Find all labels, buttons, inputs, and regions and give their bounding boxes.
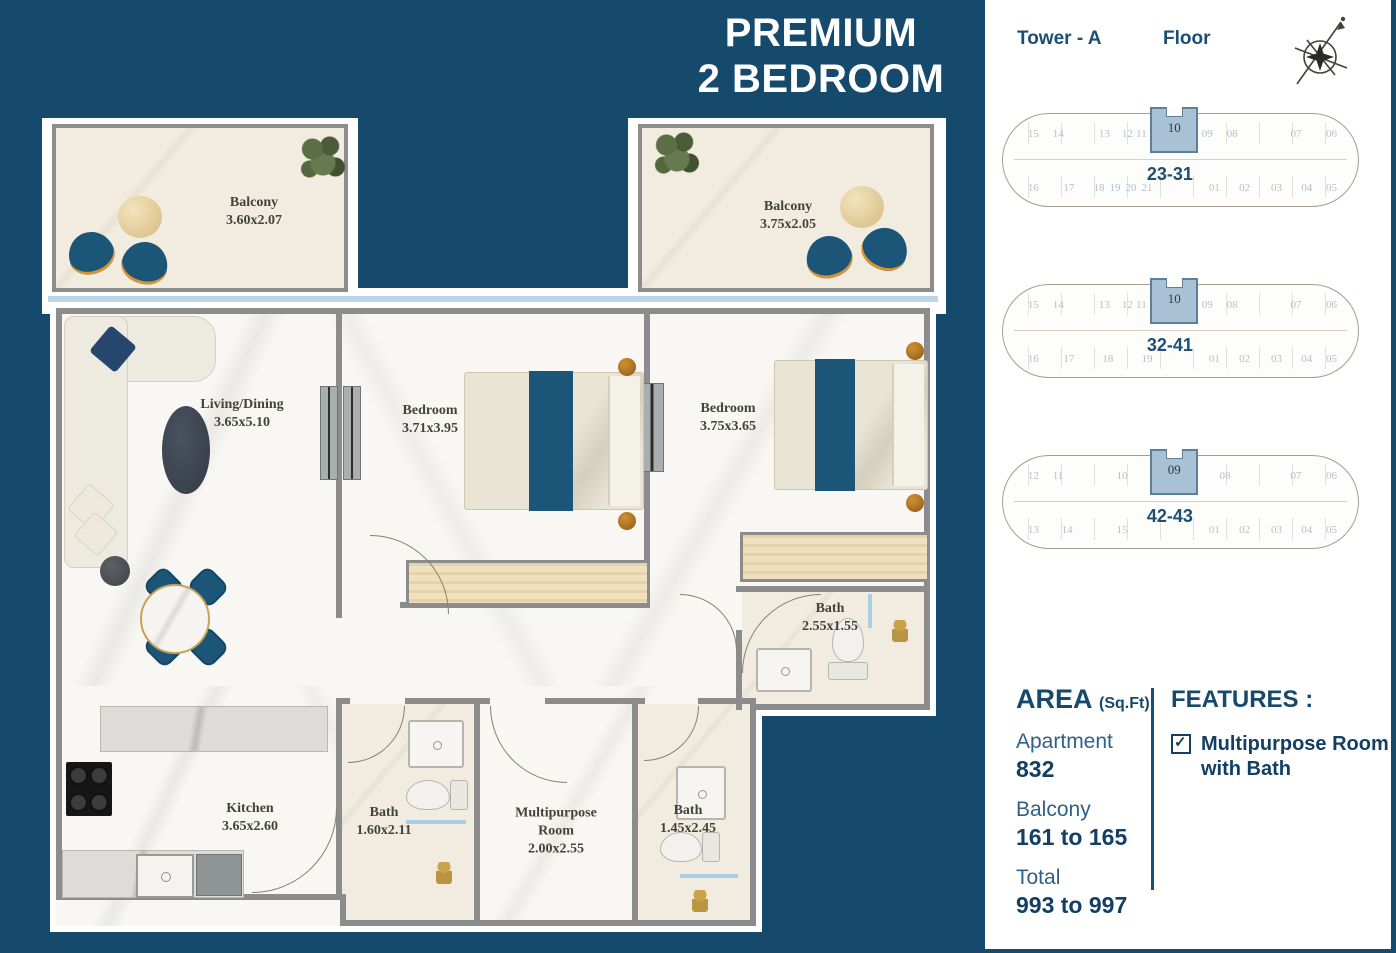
bed-runner (815, 359, 855, 491)
floor-plate-32-41: 15 14 13 12 11 09 08 07 06 16 17 18 19 0… (1002, 284, 1359, 378)
unit-number: 18 (1094, 182, 1105, 194)
kitchen-counter (100, 706, 328, 752)
area-item-value: 161 to 165 (1016, 824, 1127, 851)
unit-number: 19 (1110, 182, 1121, 194)
toilet (450, 780, 468, 810)
unit-number: 04 (1301, 353, 1312, 365)
floor-plate-23-31: 15 14 13 12 11 09 08 07 06 16 17 18 19 2… (1002, 113, 1359, 207)
unit-number: 05 (1326, 182, 1337, 194)
area-heading: AREA (Sq.Ft) (1016, 684, 1150, 715)
room-dims: 3.75x2.05 (760, 216, 816, 234)
balcony-table (840, 186, 884, 228)
unit-number: 02 (1239, 182, 1250, 194)
plate-corridor-line (1014, 159, 1348, 160)
unit-number: 12 (1122, 128, 1133, 140)
plate-corridor-line (1014, 501, 1348, 502)
bed-pillows (608, 376, 640, 506)
unit-number: 06 (1326, 128, 1337, 140)
floor-range: 23-31 (1147, 164, 1193, 185)
wall (474, 704, 480, 920)
shower-glass (868, 594, 872, 628)
feature-label: Multipurpose Room with Bath (1201, 732, 1396, 782)
wardrobe (740, 532, 930, 582)
dining-table (140, 584, 210, 654)
room-name: Bedroom (402, 402, 458, 420)
section-divider (1151, 688, 1154, 890)
plan-title-line2: 2 BEDROOM (688, 56, 954, 102)
area-item-value: 993 to 997 (1016, 892, 1127, 919)
unit-number: 03 (1271, 353, 1282, 365)
unit-number: 11 (1053, 470, 1064, 482)
room-label-kitchen: Kitchen 3.65x2.60 (222, 800, 278, 836)
unit-number: 02 (1239, 353, 1250, 365)
lamp (906, 494, 924, 512)
plant (298, 134, 346, 184)
wall (340, 920, 756, 926)
wall (698, 698, 756, 704)
unit-number: 13 (1099, 299, 1110, 311)
room-label-bath-3: Bath 1.45x2.45 (660, 802, 716, 838)
room-label-bath-master: Bath 2.55x1.55 (802, 600, 858, 636)
area-item-label: Apartment (1016, 730, 1127, 754)
feature-item: Multipurpose Room with Bath (1171, 732, 1396, 782)
unit-number: 04 (1301, 182, 1312, 194)
unit-number: 06 (1326, 470, 1337, 482)
unit-number: 03 (1271, 182, 1282, 194)
wall (340, 894, 346, 926)
unit-number: 07 (1291, 470, 1302, 482)
room-dims: 2.00x2.55 (499, 841, 613, 859)
unit-number: 07 (1291, 128, 1302, 140)
unit-number: 13 (1028, 524, 1039, 536)
unit-number: 01 (1209, 524, 1220, 536)
unit-number: 08 (1227, 299, 1238, 311)
bed (464, 372, 644, 510)
unit-number: 12 (1028, 470, 1039, 482)
shower-glass (406, 820, 466, 824)
room-dims: 3.71x3.95 (402, 420, 458, 438)
unit-number: 06 (1326, 299, 1337, 311)
page: PREMIUM 2 BEDROOM (0, 0, 1396, 953)
wall (736, 586, 930, 592)
room-dims: 3.65x2.60 (222, 818, 278, 836)
unit-number: 15 (1028, 299, 1039, 311)
room-dims: 1.45x2.45 (660, 820, 716, 838)
unit-number: 02 (1239, 524, 1250, 536)
area-item-label: Total (1016, 866, 1127, 890)
bed-pillows (892, 364, 924, 486)
bath-sink (408, 720, 464, 768)
bed-runner (529, 371, 573, 511)
plant (652, 130, 700, 180)
area-heading-text: AREA (1016, 684, 1092, 714)
tower-label: Tower - A (1017, 28, 1101, 50)
room-label-balcony-2: Balcony 3.75x2.05 (760, 198, 816, 234)
toilet (406, 780, 450, 810)
unit-number: 18 (1102, 353, 1113, 365)
info-panel: Tower - A Floor 15 14 13 12 11 09 08 (985, 0, 1396, 953)
unit-number: 09 (1202, 299, 1213, 311)
unit-number: 01 (1209, 353, 1220, 365)
lamp (618, 512, 636, 530)
floor-label: Floor (1163, 28, 1211, 50)
floor-plan: Balcony 3.60x2.07 Balcony 3.75x2.05 Livi… (40, 120, 946, 940)
unit-number: 17 (1063, 353, 1074, 365)
unit-number: 14 (1062, 524, 1073, 536)
bed (774, 360, 928, 490)
pouf (100, 556, 130, 586)
unit-number: 16 (1028, 182, 1039, 194)
wall (56, 308, 930, 314)
unit-number: 01 (1209, 182, 1220, 194)
room-name: Multipurpose Room (499, 805, 613, 841)
wall (336, 704, 342, 894)
unit-number: 17 (1063, 182, 1074, 194)
unit-number: 08 (1220, 470, 1231, 482)
window-strip (48, 292, 938, 306)
unit-number: 08 (1227, 128, 1238, 140)
shower-head (892, 620, 908, 642)
closet-door (320, 386, 338, 480)
lamp (906, 342, 924, 360)
floor-plate-42-43: 12 11 10 08 07 06 13 14 15 01 02 03 04 0… (1002, 455, 1359, 549)
kitchen-sink (136, 854, 194, 898)
room-label-living-dining: Living/Dining 3.65x5.10 (200, 396, 283, 432)
area-item-value: 832 (1016, 756, 1127, 783)
room-name: Bath (660, 802, 716, 820)
room-name: Bath (356, 804, 411, 822)
cooktop (66, 762, 112, 816)
room-dims: 3.65x5.10 (200, 414, 283, 432)
room-name: Balcony (760, 198, 816, 216)
unit-number: 05 (1326, 353, 1337, 365)
shower-glass (680, 874, 738, 878)
room-label-balcony-1: Balcony 3.60x2.07 (226, 194, 282, 230)
highlighted-unit: 10 (1150, 278, 1198, 324)
unit-number: 16 (1028, 353, 1039, 365)
unit-number: 09 (1202, 128, 1213, 140)
unit-number: 03 (1271, 524, 1282, 536)
unit-number: 11 (1136, 128, 1147, 140)
shower-head (436, 862, 452, 884)
room-label-bedroom-1: Bedroom 3.71x3.95 (402, 402, 458, 438)
unit-number: 20 (1125, 182, 1136, 194)
area-unit-text: (Sq.Ft) (1099, 695, 1150, 712)
wall (56, 308, 62, 900)
unit-number: 11 (1136, 299, 1147, 311)
room-name: Kitchen (222, 800, 278, 818)
room-dims: 2.55x1.55 (802, 618, 858, 636)
unit-number: 15 (1028, 128, 1039, 140)
unit-number: 12 (1122, 299, 1133, 311)
wall (750, 704, 756, 926)
unit-number: 10 (1117, 470, 1128, 482)
room-name: Balcony (226, 194, 282, 212)
room-dims: 3.60x2.07 (226, 212, 282, 230)
highlighted-unit: 09 (1150, 449, 1198, 495)
compass-rose-icon (1285, 8, 1359, 90)
room-label-bedroom-2: Bedroom 3.75x3.65 (700, 400, 756, 436)
lamp (618, 358, 636, 376)
unit-number: 14 (1053, 128, 1064, 140)
closet-door (343, 386, 361, 480)
dishwasher (196, 854, 242, 896)
wall (545, 698, 645, 704)
floorplan-panel: PREMIUM 2 BEDROOM (0, 0, 985, 953)
wall (750, 704, 930, 710)
floor-range: 42-43 (1147, 506, 1193, 527)
area-item-label: Balcony (1016, 798, 1127, 822)
room-name: Bedroom (700, 400, 756, 418)
room-label-multipurpose: Multipurpose Room 2.00x2.55 (499, 805, 613, 860)
room-name: Living/Dining (200, 396, 283, 414)
floor-range: 32-41 (1147, 335, 1193, 356)
checkbox-checked-icon (1171, 734, 1191, 754)
plate-corridor-line (1014, 330, 1348, 331)
plan-title: PREMIUM 2 BEDROOM (688, 10, 954, 102)
room-dims: 1.60x2.11 (356, 822, 411, 840)
toilet (828, 662, 868, 680)
page-border-right (1391, 0, 1396, 953)
balcony-table (118, 196, 162, 238)
features-heading: FEATURES : (1171, 686, 1313, 714)
area-list: Apartment 832 Balcony 161 to 165 Total 9… (1016, 730, 1127, 934)
shower-head (692, 890, 708, 912)
room-name: Bath (802, 600, 858, 618)
unit-number: 13 (1099, 128, 1110, 140)
unit-number: 05 (1326, 524, 1337, 536)
unit-number: 04 (1301, 524, 1312, 536)
page-border-bottom (0, 949, 1396, 953)
wall (632, 704, 638, 920)
room-dims: 3.75x3.65 (700, 418, 756, 436)
unit-number: 14 (1053, 299, 1064, 311)
highlighted-unit: 10 (1150, 107, 1198, 153)
plan-title-line1: PREMIUM (688, 10, 954, 56)
room-label-bath-2: Bath 1.60x2.11 (356, 804, 411, 840)
unit-number: 15 (1117, 524, 1128, 536)
unit-number: 07 (1291, 299, 1302, 311)
